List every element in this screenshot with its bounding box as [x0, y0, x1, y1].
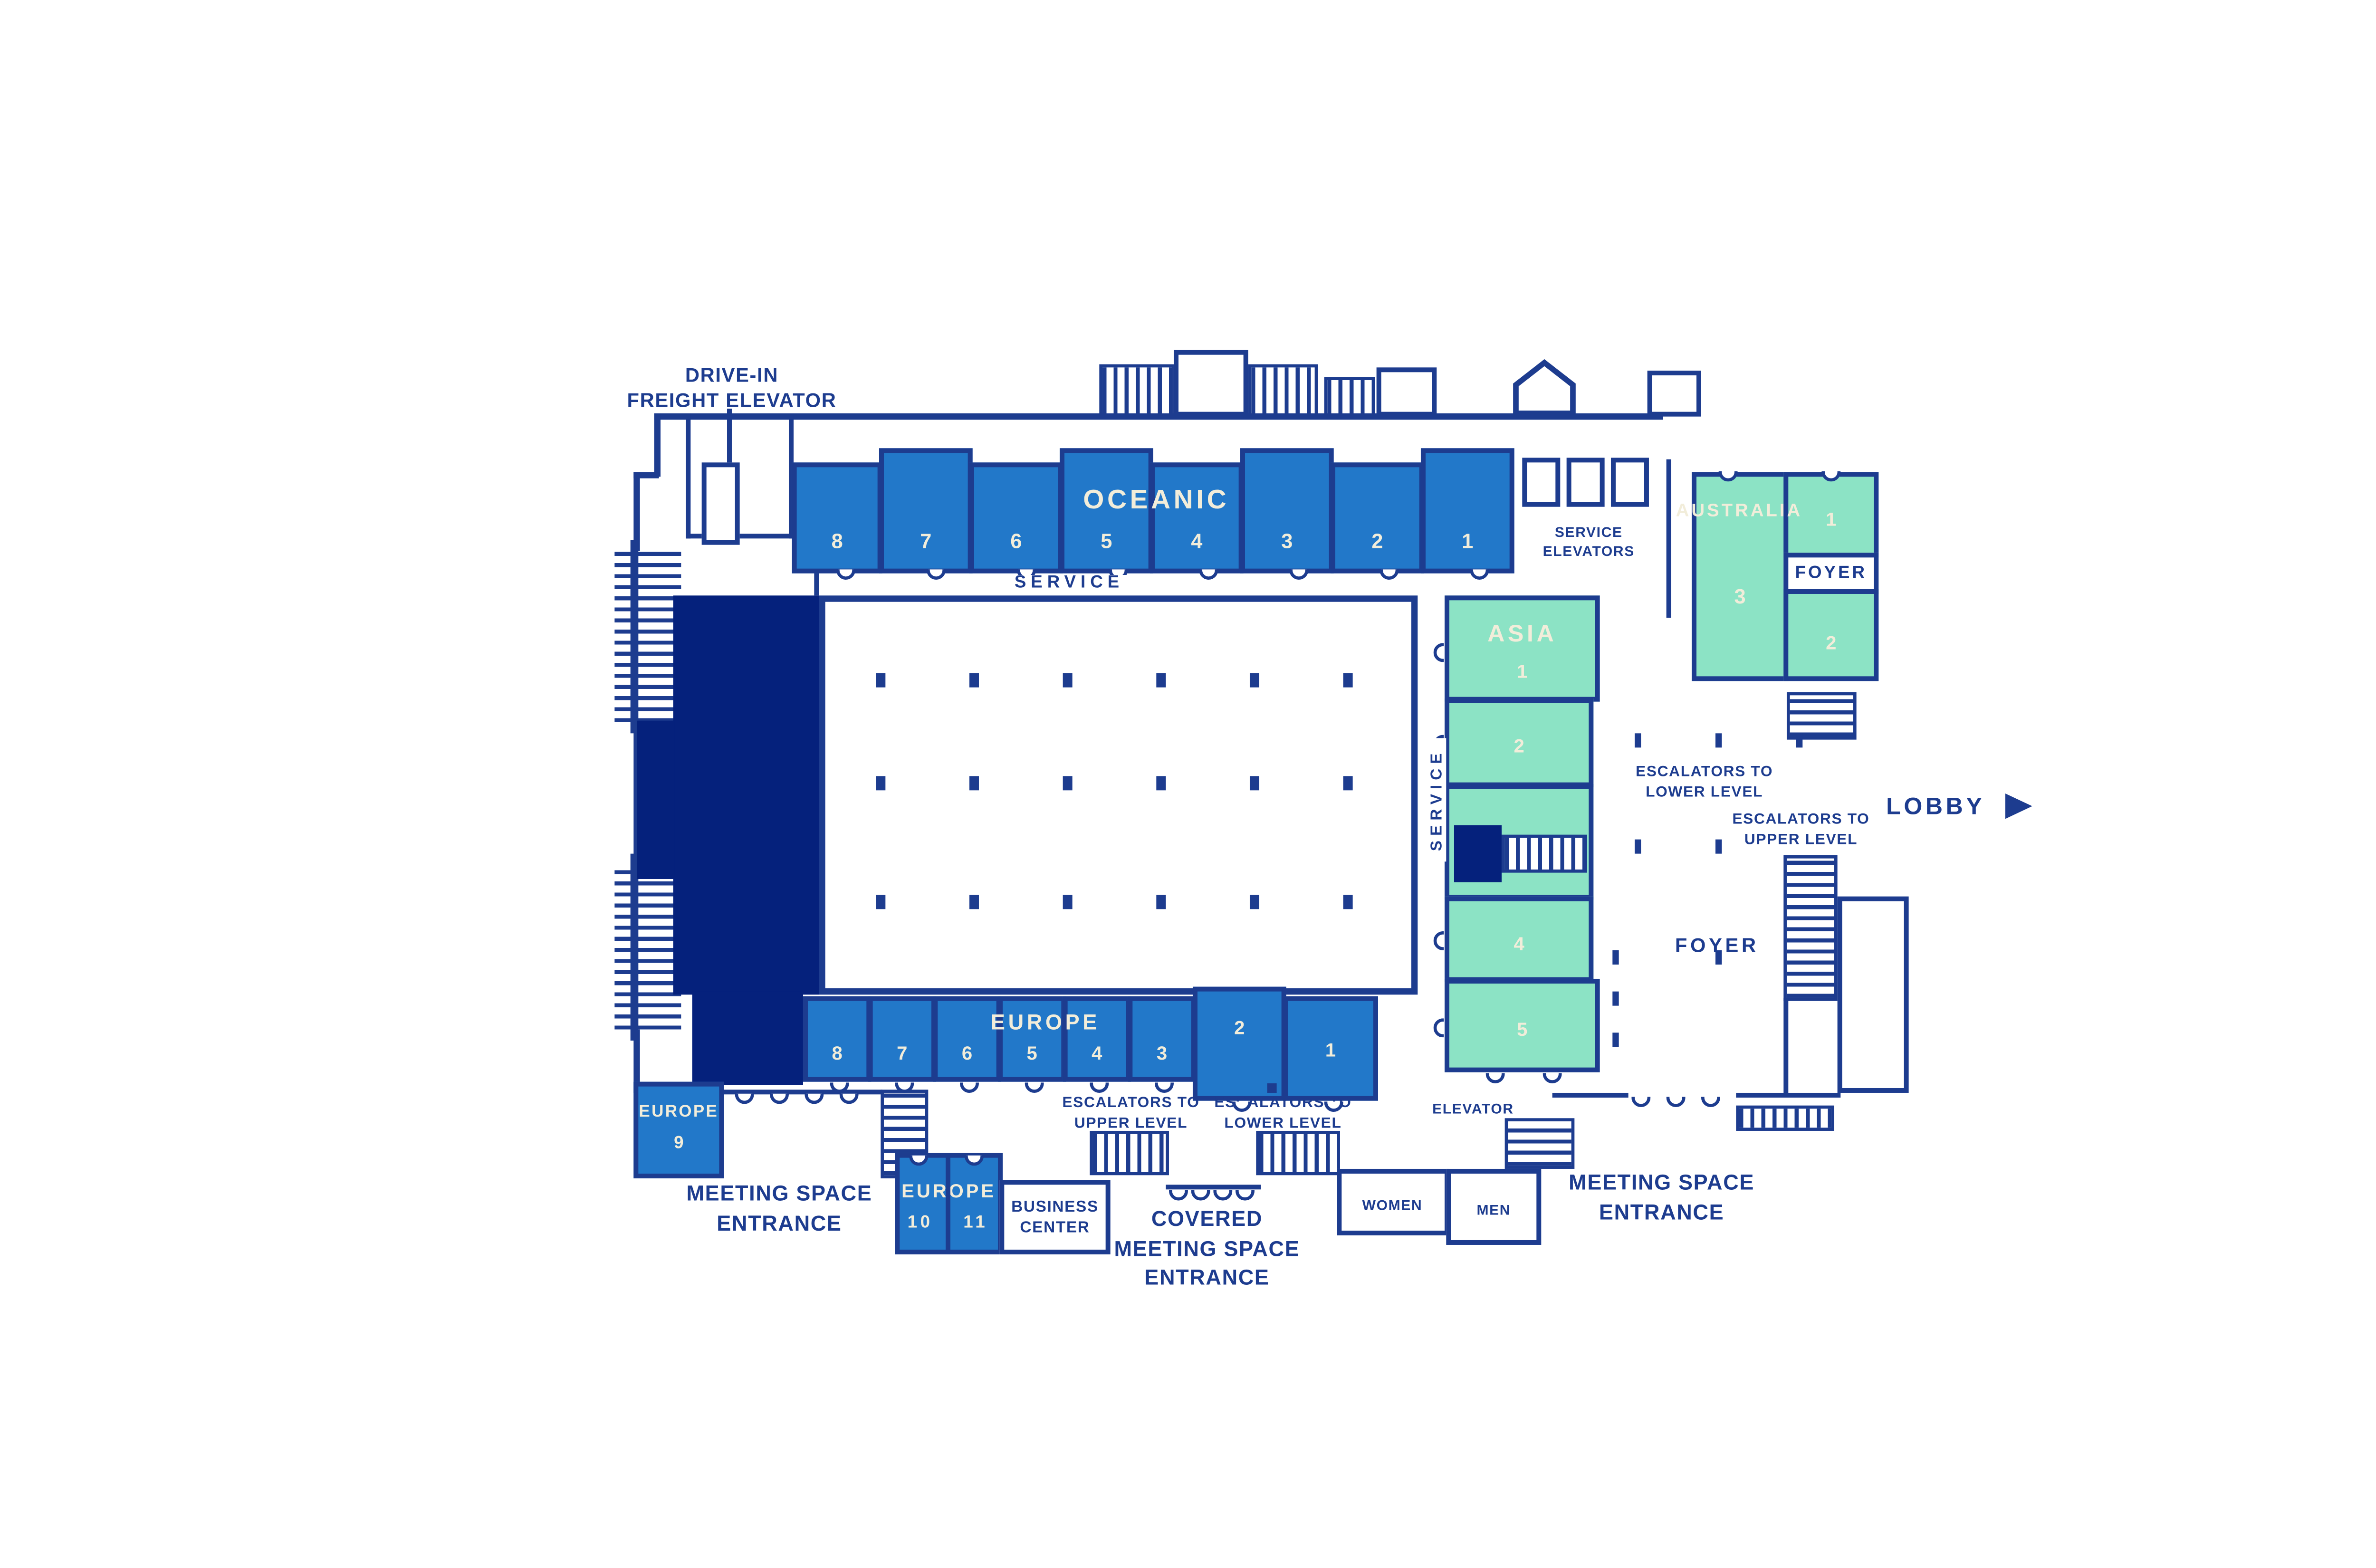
- meeting-right-line2: ENTRANCE: [1535, 1201, 1788, 1223]
- room-asia-2: 2: [1445, 698, 1593, 787]
- escalator-to-lower-icon: [1256, 1131, 1340, 1175]
- column-pillar: [1063, 673, 1073, 688]
- entrance-wall: [1736, 1093, 1840, 1098]
- room-europe-7: 7: [868, 996, 936, 1082]
- room-europe-4: 4: [1063, 996, 1131, 1082]
- women-label: WOMEN: [1345, 1199, 1440, 1213]
- esc-upper-b-line2: UPPER LEVEL: [1044, 1116, 1218, 1131]
- meeting-right-line1: MEETING SPACE: [1535, 1172, 1788, 1194]
- europe9-title: EUROPE: [638, 1102, 719, 1121]
- corridor-wall: [1783, 998, 1788, 1096]
- loading-dock-stairs-icon: [1248, 364, 1318, 417]
- room-oceanic-1: 1: [1421, 448, 1514, 573]
- room-europe-6: 6: [933, 996, 1001, 1082]
- escalator-to-lower-icon: [1502, 835, 1587, 873]
- service-elevator-door: [1567, 458, 1605, 507]
- room-number: 3: [1132, 1042, 1191, 1064]
- lobby-label: LOBBY: [1872, 795, 1999, 819]
- service-corridor-vertical-label: SERVICE: [1430, 738, 1446, 861]
- room-number: 2: [1198, 1017, 1282, 1039]
- esc-lower-b-line1: ESCALATORS TO: [1196, 1096, 1370, 1111]
- room-europe-9: EUROPE 9: [633, 1082, 724, 1178]
- covered-entrance-label: COVERED MEETING SPACE ENTRANCE: [1049, 1208, 1366, 1288]
- column-pillar: [1156, 776, 1166, 790]
- room-number: 1: [1288, 1039, 1373, 1061]
- foyer-column-dash: [1612, 950, 1618, 965]
- door-arc-icon: [1631, 1088, 1650, 1107]
- esc-upper-line2: UPPER LEVEL: [1706, 832, 1896, 848]
- escalator-to-upper-icon: [1783, 855, 1837, 1001]
- stairs-icon: [1736, 1106, 1834, 1131]
- service-corridor-label: SERVICE: [1007, 575, 1131, 593]
- room-oceanic-3: 3: [1240, 448, 1334, 573]
- room-number: 4: [1068, 1042, 1126, 1064]
- drive-in-line2: FREIGHT ELEVATOR: [574, 391, 891, 411]
- door-arc-icon: [965, 1147, 984, 1166]
- loading-dock-bay: [1174, 350, 1248, 417]
- foyer-column-dash: [1715, 950, 1721, 965]
- meeting-entrance-right-label: MEETING SPACE ENTRANCE: [1535, 1172, 1788, 1223]
- roof-annex: [1648, 371, 1701, 417]
- room-number: 1: [1449, 660, 1595, 683]
- room-number: 2: [1788, 632, 1874, 654]
- escalator-to-upper-icon: [1090, 1131, 1169, 1175]
- room-number: 3: [1245, 529, 1329, 553]
- escalators-upper-bottom-label: ESCALATORS TO UPPER LEVEL: [1044, 1096, 1218, 1131]
- service-elevators-label: SERVICE ELEVATORS: [1510, 526, 1668, 559]
- stair-rail: [631, 854, 638, 1041]
- men-label: MEN: [1457, 1204, 1530, 1218]
- elevator-label: ELEVATOR: [1410, 1102, 1537, 1117]
- room-europe-3: 3: [1128, 996, 1196, 1082]
- covered-line1: COVERED: [1049, 1208, 1366, 1230]
- room-australia-3: 3: [1692, 472, 1788, 681]
- stairwell-icon: [614, 865, 681, 1030]
- loading-dock-bay: [1377, 367, 1437, 416]
- stage-lower-extension: [692, 992, 803, 1085]
- column-pillar: [969, 673, 979, 688]
- room-oceanic-5: 5: [1060, 448, 1153, 573]
- escalators-upper-foyer-label: ESCALATORS TO UPPER LEVEL: [1706, 813, 1896, 847]
- esc-lower-line1: ESCALATORS TO: [1610, 765, 1800, 780]
- room-oceanic-4: 4: [1150, 462, 1244, 573]
- exhibit-hall: [819, 595, 1418, 994]
- column-pillar: [1343, 895, 1353, 909]
- stair-rail: [631, 540, 638, 734]
- covered-line3: ENTRANCE: [1049, 1267, 1366, 1289]
- column-pillar: [1267, 1083, 1277, 1093]
- meeting-entrance-left-label: MEETING SPACE ENTRANCE: [652, 1183, 906, 1234]
- room-europe-5: 5: [998, 996, 1066, 1082]
- room-divider: [946, 1153, 950, 1254]
- top-outer-wall: [654, 413, 1663, 419]
- room-asia-5: 5: [1445, 979, 1600, 1072]
- column-pillar: [1063, 895, 1073, 909]
- outer-wall-step: [654, 413, 660, 477]
- room-oceanic-8: 8: [792, 462, 882, 573]
- esc-lower-b-line2: LOWER LEVEL: [1196, 1116, 1370, 1131]
- foyer-column-dash: [1796, 733, 1802, 747]
- door-arc-icon: [1821, 462, 1840, 481]
- stage-area: [673, 595, 819, 994]
- stairs-icon: [1787, 692, 1857, 740]
- column-pillar: [1250, 895, 1259, 909]
- column-pillar: [876, 895, 885, 909]
- column-pillar: [1343, 673, 1353, 688]
- column-pillar: [876, 776, 885, 790]
- column-pillar: [1063, 776, 1073, 790]
- service-elevators-line2: ELEVATORS: [1510, 545, 1668, 559]
- lobby-arrow-icon: [2005, 794, 2032, 819]
- covered-entrance-wall: [1166, 1185, 1261, 1189]
- foyer-column-dash: [1612, 1033, 1618, 1047]
- column-pillar: [1250, 673, 1259, 688]
- asia-title: ASIA: [1449, 621, 1595, 648]
- room-number: 4: [1155, 529, 1239, 553]
- covered-line2: MEETING SPACE: [1049, 1238, 1366, 1259]
- foyer-column-dash: [1635, 733, 1640, 747]
- stairwell-icon: [614, 551, 681, 722]
- right-annex: [1838, 897, 1909, 1093]
- column-pillar: [969, 776, 979, 790]
- room-number: 6: [974, 529, 1058, 553]
- interior-wall: [686, 413, 690, 538]
- room-number: 7: [873, 1042, 931, 1064]
- esc-upper-line1: ESCALATORS TO: [1706, 813, 1896, 828]
- column-pillar: [1343, 776, 1353, 790]
- stage-left-notch: [637, 721, 675, 879]
- room-number: 9: [638, 1134, 719, 1153]
- room-number: 1: [1426, 529, 1510, 553]
- loading-dock-stairs-icon: [1324, 377, 1375, 416]
- door-arc-icon: [1719, 462, 1738, 481]
- service-elevator-door: [1611, 458, 1649, 507]
- corridor-wall: [1667, 459, 1671, 618]
- service-elevator-door: [1522, 458, 1560, 507]
- esc-upper-b-line1: ESCALATORS TO: [1044, 1096, 1218, 1111]
- room-number: 5: [1064, 529, 1149, 553]
- foyer-column-dash: [1715, 840, 1721, 854]
- room-asia-1: ASIA 1: [1445, 595, 1600, 701]
- door-arc-icon: [1701, 1088, 1720, 1107]
- elevator-stairs-icon: [1505, 1118, 1575, 1169]
- drive-in-freight-elevator-label: DRIVE-IN FREIGHT ELEVATOR: [574, 366, 891, 410]
- room-number: 7: [884, 529, 968, 553]
- column-pillar: [1250, 776, 1259, 790]
- escalators-lower-foyer-label: ESCALATORS TO LOWER LEVEL: [1610, 765, 1800, 800]
- room-number: 2: [1449, 735, 1589, 757]
- foyer-column-dash: [1635, 840, 1640, 854]
- escalator-shaft: [1454, 825, 1502, 882]
- room-number: 6: [938, 1042, 996, 1064]
- australia-foyer-label: FOYER: [1785, 565, 1877, 583]
- door-arc-icon: [735, 1085, 754, 1104]
- column-pillar: [969, 895, 979, 909]
- room-number: 1: [1788, 508, 1874, 531]
- room-oceanic-2: 2: [1331, 462, 1424, 573]
- room-europe-1: 1: [1283, 996, 1378, 1101]
- door-arc-icon: [805, 1085, 824, 1104]
- door-arc-icon: [770, 1085, 789, 1104]
- room-number: 4: [1449, 933, 1589, 955]
- meeting-left-line2: ENTRANCE: [652, 1213, 906, 1234]
- room-number: 8: [808, 1042, 866, 1064]
- room-asia-4: 4: [1445, 897, 1593, 982]
- room-number: 5: [1449, 1018, 1595, 1041]
- esc-lower-line2: LOWER LEVEL: [1610, 785, 1800, 800]
- loading-dock-stairs-icon: [1099, 364, 1175, 417]
- room-number: 5: [1003, 1042, 1061, 1064]
- foyer-column-dash: [1715, 733, 1721, 747]
- column-pillar: [1156, 895, 1166, 909]
- room-oceanic-7: 7: [879, 448, 973, 573]
- column-pillar: [1156, 673, 1166, 688]
- room-europe-8: 8: [803, 996, 871, 1082]
- room-number: 2: [1335, 529, 1419, 553]
- escalators-lower-bottom-label: ESCALATORS TO LOWER LEVEL: [1196, 1096, 1370, 1131]
- service-elevators-line1: SERVICE: [1510, 526, 1668, 540]
- meeting-left-line1: MEETING SPACE: [652, 1183, 906, 1205]
- entrance-wall: [1552, 1093, 1629, 1098]
- room-australia-1: 1: [1783, 472, 1878, 557]
- freight-elevator-shaft: [702, 462, 740, 545]
- drive-in-line1: DRIVE-IN: [574, 366, 891, 386]
- room-australia-2: 2: [1783, 589, 1878, 681]
- door-arc-icon: [1667, 1088, 1686, 1107]
- foyer-column-dash: [1612, 992, 1618, 1006]
- room-number: 8: [797, 529, 878, 553]
- room-number: 3: [1696, 584, 1783, 608]
- room-oceanic-6: 6: [969, 462, 1063, 573]
- column-pillar: [876, 673, 885, 688]
- floor-plan: DRIVE-IN FREIGHT ELEVATOR 8 7 6 5 4 3 2 …: [0, 0, 2376, 1568]
- roof-structure-icon: [1511, 358, 1578, 418]
